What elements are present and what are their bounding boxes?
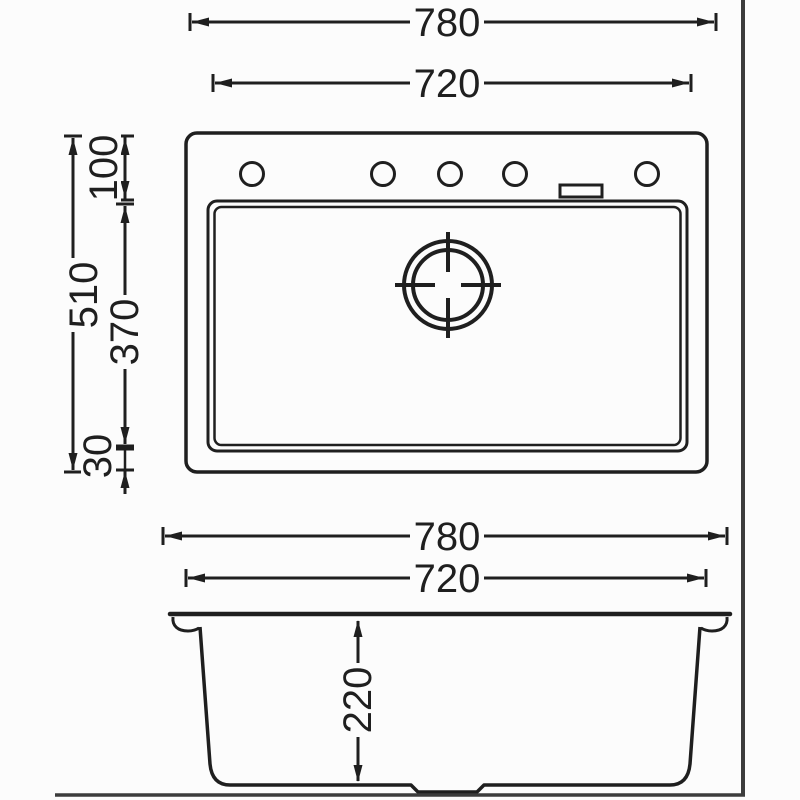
drawing-svg: 780 720 510 100 370 bbox=[0, 0, 800, 800]
dim-label-30: 30 bbox=[76, 434, 120, 479]
faucet-hole-icon bbox=[241, 163, 264, 186]
faucet-hole-icon bbox=[439, 163, 462, 186]
dim-label-780-top: 780 bbox=[414, 1, 481, 45]
accessory-slot-icon bbox=[560, 185, 602, 197]
image-border bbox=[55, 0, 745, 796]
faucet-hole-icon bbox=[372, 163, 395, 186]
top-view bbox=[186, 133, 707, 472]
dim-label-370: 370 bbox=[103, 299, 147, 366]
dim-label-100: 100 bbox=[82, 135, 126, 202]
dim-label-720-top: 720 bbox=[414, 62, 481, 106]
dim-label-510: 510 bbox=[62, 262, 106, 329]
dim-bowl-depth: 370 bbox=[103, 204, 147, 446]
faucet-hole-icon bbox=[504, 163, 527, 186]
dim-top-bowl-width: 720 bbox=[213, 62, 691, 106]
section-bowl-outline bbox=[200, 627, 700, 792]
section-left-lip bbox=[173, 617, 199, 631]
dim-label-720-bottom: 720 bbox=[414, 557, 481, 601]
faucet-hole-icon bbox=[636, 163, 659, 186]
dim-bottom-bowl-width: 720 bbox=[186, 557, 706, 601]
dim-bowl-height: 220 bbox=[336, 620, 380, 782]
dim-label-780-bottom: 780 bbox=[414, 515, 481, 559]
section-view bbox=[170, 614, 730, 792]
drain-icon bbox=[395, 232, 501, 338]
sink-dimension-drawing: 780 720 510 100 370 bbox=[0, 0, 800, 800]
section-right-lip bbox=[701, 617, 727, 631]
dim-label-220: 220 bbox=[336, 667, 380, 734]
dim-bottom-overall-width: 780 bbox=[163, 515, 727, 559]
dim-rim-to-bowl: 100 bbox=[82, 131, 134, 205]
dim-top-overall-width: 780 bbox=[190, 1, 716, 45]
